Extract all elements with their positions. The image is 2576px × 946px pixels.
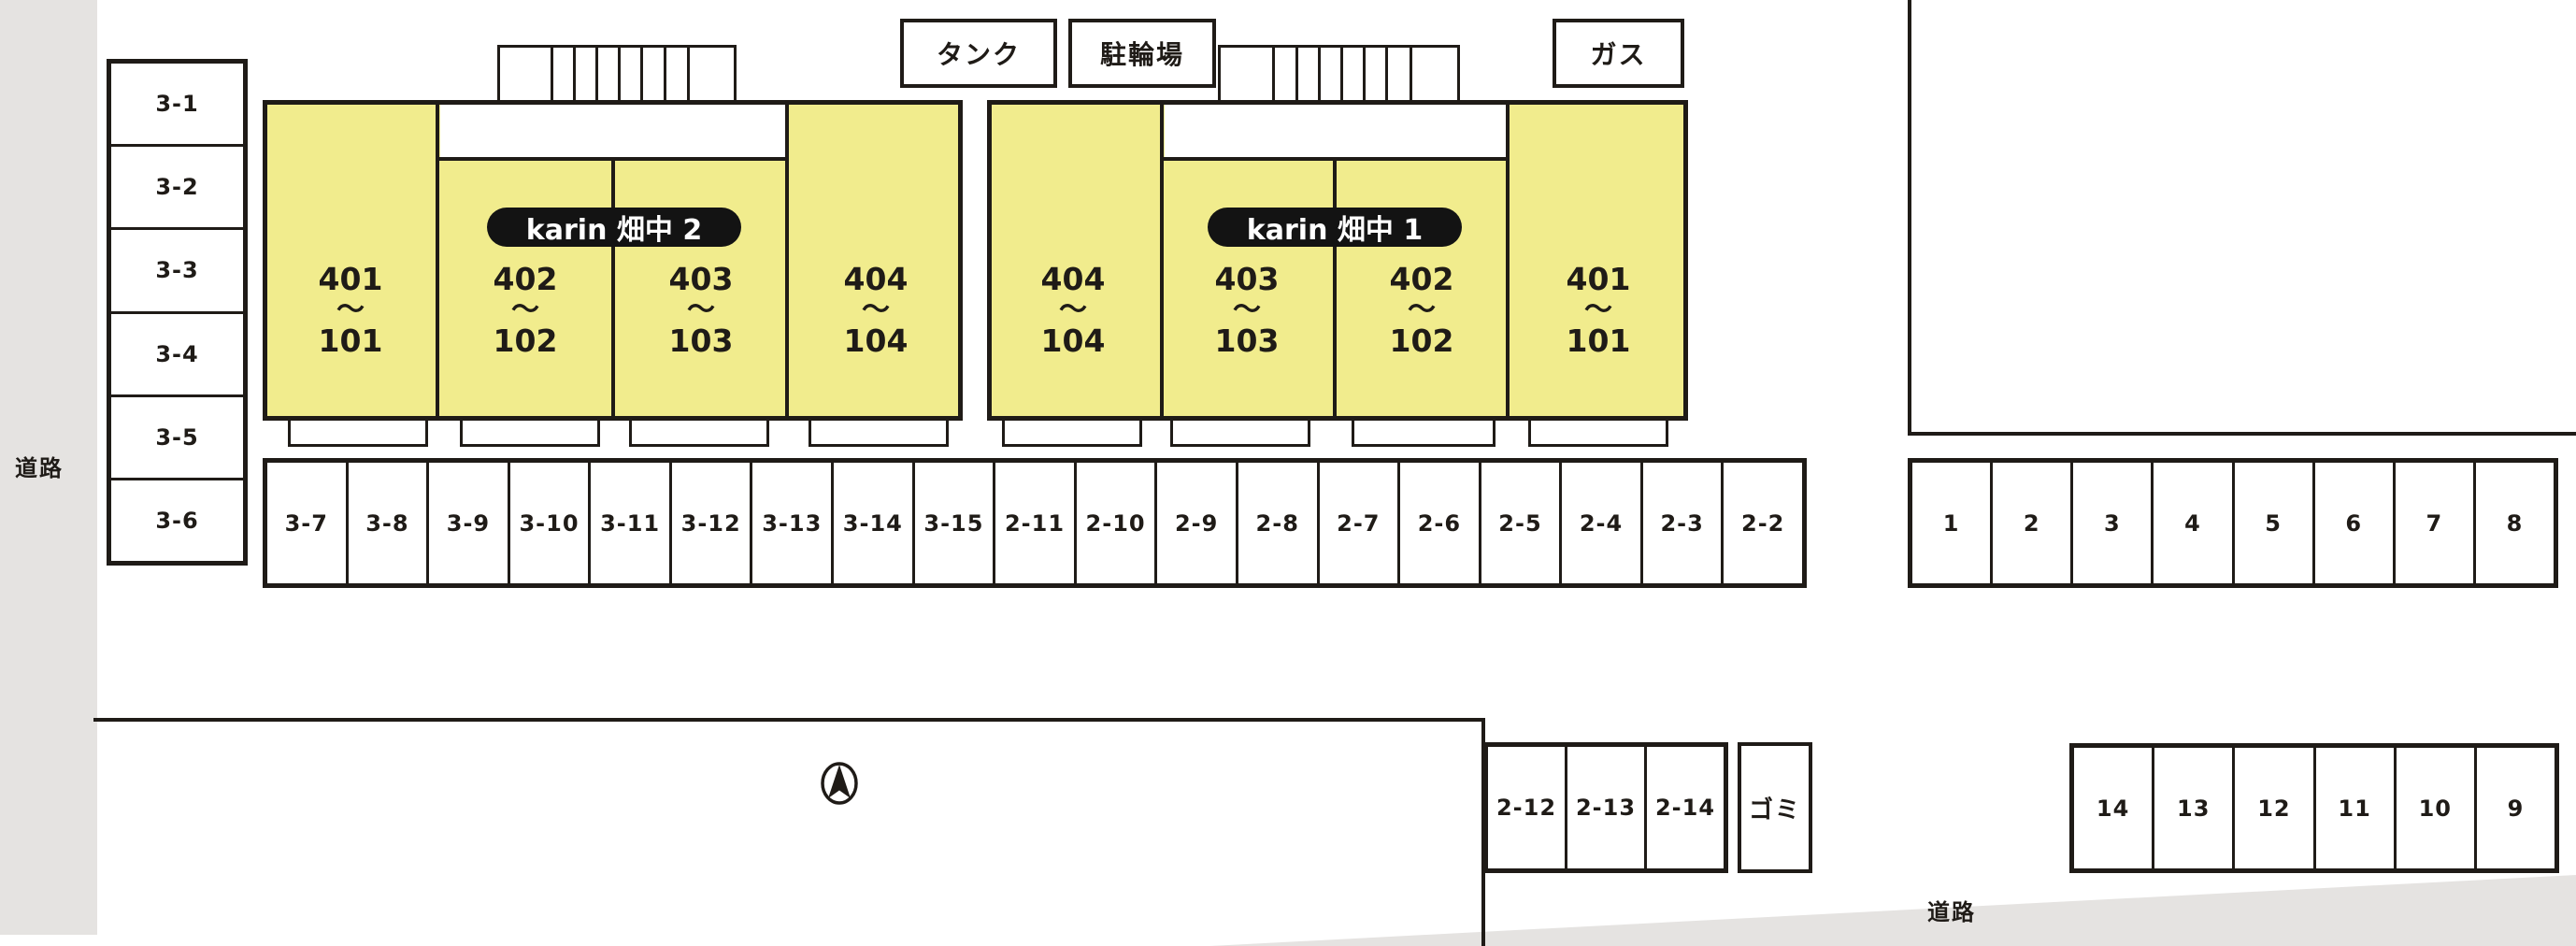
parking-space-2-14: 2-14 (1644, 744, 1726, 871)
lot-boundary-right-horizontal (1908, 432, 2576, 436)
stairs-step-line (640, 48, 643, 100)
parking-space-2-7: 2-7 (1317, 460, 1401, 586)
stairs-step-line (551, 48, 553, 100)
porch (460, 419, 600, 447)
parking-space-label: 13 (2177, 795, 2210, 822)
building-1-name: karin 畑中 1 (1247, 207, 1423, 248)
parking-space-label: 5 (2265, 510, 2282, 537)
parking-space-2-2: 2-2 (1721, 460, 1805, 586)
parking-space-label: 3-9 (447, 510, 490, 537)
parking-space-4: 4 (2151, 460, 2234, 586)
parking-space-label: 2-2 (1741, 510, 1784, 537)
parking-space-label: 2-7 (1337, 510, 1380, 537)
building-1-unit-range-2: 403 〜 103 (1181, 263, 1312, 357)
parking-space-label: 2-13 (1576, 795, 1636, 821)
parking-space-label: 10 (2419, 795, 2452, 822)
parking-column-left: 3-13-23-33-43-53-6 (107, 59, 248, 566)
parking-space-2-8: 2-8 (1236, 460, 1320, 586)
building-2-corridor (440, 105, 787, 157)
garbage-label: ゴミ (1749, 791, 1801, 825)
stairs-step-line (1318, 48, 1321, 100)
parking-space-label: 3-5 (155, 424, 198, 451)
parking-space-2-5: 2-5 (1479, 460, 1563, 586)
building-1-unit-range-3: 402 〜 102 (1356, 263, 1487, 357)
porch (288, 419, 428, 447)
parking-space-label: 1 (1943, 510, 1960, 537)
parking-space-label: 2 (2024, 510, 2040, 537)
building-2-name: karin 畑中 2 (526, 207, 702, 248)
parking-space-3-9: 3-9 (426, 460, 510, 586)
parking-space-label: 2-14 (1655, 795, 1715, 821)
building-1-wall (1164, 157, 1510, 161)
parking-space-label: 3-4 (155, 341, 198, 367)
parking-space-3-14: 3-14 (831, 460, 915, 586)
stairs-step-line (595, 48, 598, 100)
parking-space-label: 2-6 (1418, 510, 1461, 537)
parking-space-2-9: 2-9 (1154, 460, 1238, 586)
parking-row-bottom-right: 14131211109 (2069, 743, 2559, 873)
stairs-building-2 (497, 45, 737, 103)
parking-space-label: 9 (2508, 795, 2525, 822)
porch (1170, 419, 1310, 447)
porch (1528, 419, 1668, 447)
porch (1352, 419, 1496, 447)
parking-space-label: 2-11 (1005, 510, 1065, 537)
parking-row-bottom-center: 2-122-132-14 (1483, 742, 1728, 873)
tank-label: タンク (937, 35, 1021, 72)
parking-space-13: 13 (2152, 745, 2235, 871)
parking-space-3-1: 3-1 (108, 61, 246, 147)
north-compass-icon (819, 761, 860, 806)
porch (809, 419, 949, 447)
road-label-bottom: 道路 (1927, 894, 1976, 926)
parking-space-label: 3-12 (681, 510, 741, 537)
stairs-step-line (618, 48, 621, 100)
lot-boundary-bottom-left-horizontal (93, 718, 1485, 722)
parking-space-3-11: 3-11 (588, 460, 672, 586)
bicycle-parking-label: 駐輪場 (1100, 35, 1184, 72)
parking-space-label: 2-12 (1496, 795, 1556, 821)
parking-space-2-4: 2-4 (1559, 460, 1643, 586)
parking-space-8: 8 (2473, 460, 2556, 586)
gas-label: ガス (1590, 35, 1646, 72)
parking-space-label: 11 (2338, 795, 2370, 822)
stairs-step-line (1363, 48, 1366, 100)
parking-space-label: 14 (2097, 795, 2129, 822)
parking-space-label: 3-1 (155, 91, 198, 117)
parking-space-label: 3-10 (519, 510, 579, 537)
porch (629, 419, 769, 447)
parking-space-2-3: 2-3 (1640, 460, 1724, 586)
parking-space-label: 3-6 (155, 508, 198, 534)
stairs-building-1 (1218, 45, 1460, 103)
parking-space-label: 7 (2426, 510, 2442, 537)
garbage-box: ゴミ (1738, 742, 1812, 873)
parking-space-label: 3-8 (365, 510, 408, 537)
parking-space-label: 3-13 (762, 510, 822, 537)
parking-space-label: 3-15 (923, 510, 983, 537)
building-2-unit-range-3: 403 〜 103 (636, 263, 766, 357)
stairs-step-line (573, 48, 576, 100)
parking-space-3-6: 3-6 (108, 478, 246, 564)
parking-space-2-10: 2-10 (1074, 460, 1158, 586)
parking-space-3-5: 3-5 (108, 394, 246, 480)
parking-space-3-3: 3-3 (108, 227, 246, 313)
parking-space-11: 11 (2313, 745, 2397, 871)
parking-space-label: 3-14 (843, 510, 903, 537)
stairs-step-line (1340, 48, 1343, 100)
stairs-step-line (1272, 48, 1275, 100)
road-label-left: 道路 (15, 450, 64, 482)
parking-space-3-15: 3-15 (912, 460, 996, 586)
parking-space-6: 6 (2312, 460, 2396, 586)
building-2-unit-range-2: 402 〜 102 (460, 263, 591, 357)
parking-space-label: 2-8 (1256, 510, 1299, 537)
building-1-name-pill: karin 畑中 1 (1208, 208, 1462, 247)
parking-space-label: 2-5 (1498, 510, 1541, 537)
parking-space-2-6: 2-6 (1397, 460, 1481, 586)
parking-row-right: 12345678 (1908, 458, 2558, 588)
parking-space-9: 9 (2474, 745, 2557, 871)
building-2-wall (785, 105, 789, 416)
parking-space-3-7: 3-7 (265, 460, 349, 586)
parking-space-label: 2-3 (1660, 510, 1703, 537)
lot-boundary-right-vertical (1908, 0, 1911, 436)
building-2-wall (611, 161, 615, 416)
tank-box: タンク (900, 19, 1057, 88)
gas-box: ガス (1553, 19, 1684, 88)
stairs-step-line (1295, 48, 1298, 100)
parking-space-3: 3 (2070, 460, 2154, 586)
road-bottom (1210, 875, 2576, 946)
parking-space-7: 7 (2393, 460, 2476, 586)
stairs-step-line (664, 48, 666, 100)
parking-space-3-4: 3-4 (108, 311, 246, 397)
building-2-unit-range-1: 401 〜 101 (285, 263, 416, 357)
parking-space-label: 3-2 (155, 174, 198, 200)
parking-space-2-13: 2-13 (1565, 744, 1647, 871)
parking-space-label: 12 (2257, 795, 2290, 822)
building-1-unit-range-1: 404 〜 104 (1008, 263, 1138, 357)
stairs-step-line (1410, 48, 1412, 100)
parking-space-3-8: 3-8 (346, 460, 430, 586)
parking-space-label: 2-4 (1580, 510, 1623, 537)
parking-space-3-13: 3-13 (750, 460, 834, 586)
building-2-wall (436, 105, 439, 416)
parking-space-12: 12 (2232, 745, 2315, 871)
building-1-wall (1160, 105, 1164, 416)
building-2-name-pill: karin 畑中 2 (487, 208, 741, 247)
parking-space-1: 1 (1910, 460, 1993, 586)
parking-space-label: 3 (2104, 510, 2121, 537)
building-2-unit-range-4: 404 〜 104 (810, 263, 941, 357)
parking-space-5: 5 (2232, 460, 2315, 586)
stairs-step-line (1385, 48, 1388, 100)
building-1-corridor (1165, 105, 1506, 157)
parking-space-10: 10 (2394, 745, 2477, 871)
parking-space-14: 14 (2071, 745, 2154, 871)
parking-space-2: 2 (1990, 460, 2073, 586)
parking-space-label: 3-7 (285, 510, 328, 537)
parking-space-3-2: 3-2 (108, 144, 246, 230)
parking-space-3-10: 3-10 (508, 460, 592, 586)
parking-space-2-11: 2-11 (993, 460, 1077, 586)
parking-space-label: 2-10 (1086, 510, 1146, 537)
parking-space-2-12: 2-12 (1485, 744, 1567, 871)
parking-row-main: 3-73-83-93-103-113-123-133-143-152-112-1… (263, 458, 1807, 588)
parking-space-3-12: 3-12 (669, 460, 753, 586)
parking-space-label: 2-9 (1175, 510, 1218, 537)
porch (1002, 419, 1142, 447)
building-1-wall (1506, 105, 1510, 416)
stairs-step-line (687, 48, 690, 100)
parking-space-label: 8 (2507, 510, 2524, 537)
site-plan-canvas: 道路 道路 タンク 駐輪場 ガス karin 畑中 2 (0, 0, 2576, 946)
bicycle-parking-box: 駐輪場 (1068, 19, 1216, 88)
parking-space-label: 3-3 (155, 257, 198, 283)
parking-space-label: 6 (2345, 510, 2362, 537)
parking-space-label: 4 (2184, 510, 2201, 537)
parking-space-label: 3-11 (600, 510, 660, 537)
building-1-unit-range-4: 401 〜 101 (1533, 263, 1664, 357)
building-1-wall (1333, 161, 1337, 416)
